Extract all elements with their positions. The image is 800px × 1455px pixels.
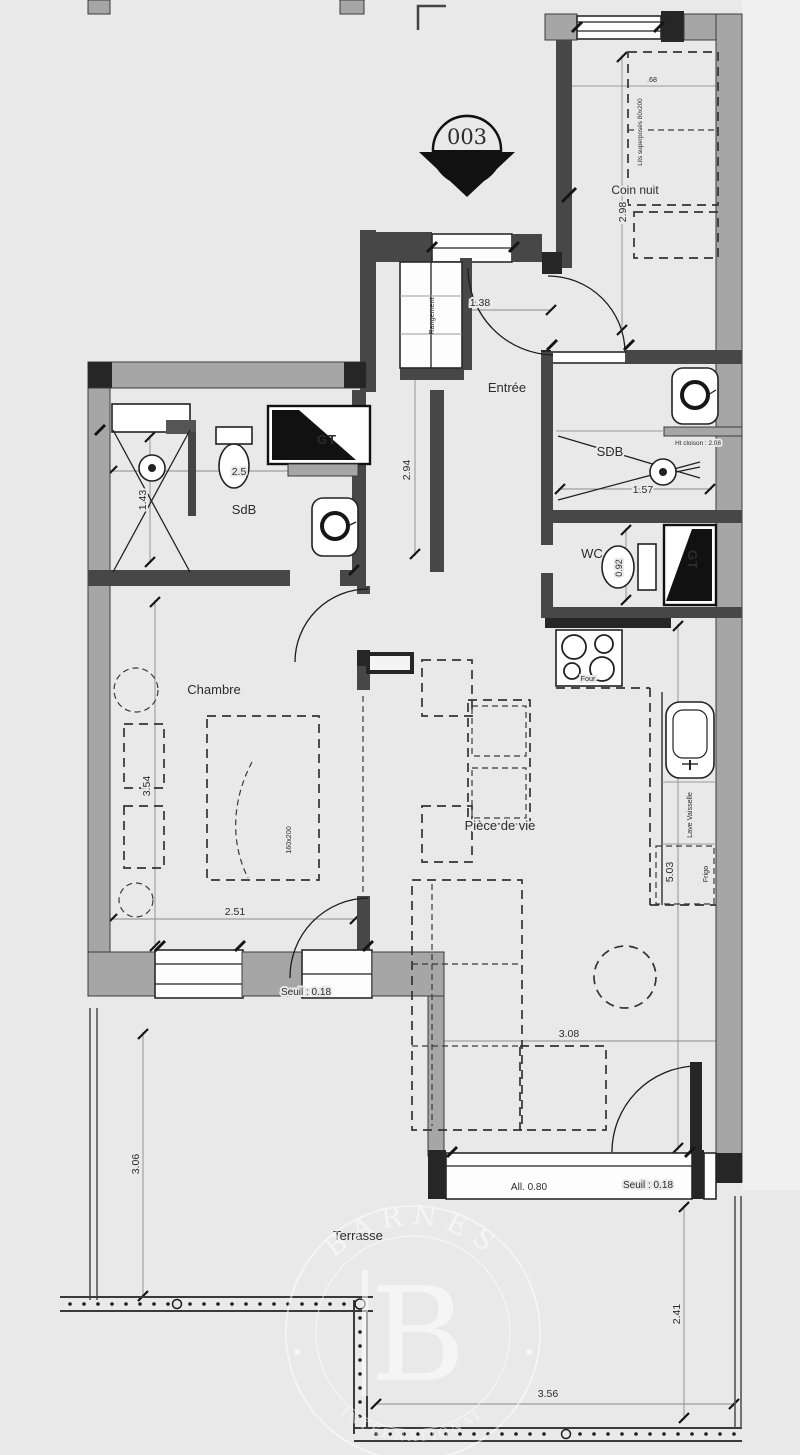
exterior-wall-right [716,14,742,1182]
toilet-tank [216,427,252,444]
bunk-bed-label: Lits superposés 80x200 [637,98,644,166]
double-bed-label: 160x200 [284,826,293,854]
window-sejour [446,1153,692,1199]
window-coin-nuit [577,16,661,39]
watermark-bar [362,1270,368,1396]
dishwasher-label: Lave Vaisselle [685,792,694,838]
watermark-initial: B [370,1259,466,1411]
partition-note-label: Ht cloison : 2.08 [675,440,721,447]
room-label-sdb-right: SDB [597,444,624,459]
dim-sejour: 3.08 [559,1028,580,1040]
sdb-right-door-opening [551,352,626,363]
railing-post [562,1430,571,1439]
dim-entree: 1.38 [470,297,491,309]
dim-hallway: 2.94 [401,460,413,481]
fridge-label: Frigo [701,866,710,882]
room-label-chambre: Chambre [187,682,240,697]
dim-kitchen-wall: 5.03 [664,862,676,883]
railing-post [173,1300,182,1309]
room-label-piece-de-vie: Pièce de vie [465,818,536,833]
dim-terrasse-left: 3.06 [130,1154,142,1175]
window-chambre [155,950,243,998]
allege-label: All. 0.80 [511,1182,548,1193]
toilet-wc-tank [638,544,656,590]
room-label-coin-nuit: Coin nuit [611,183,659,197]
chambre-door-leaf-inner [370,656,410,670]
seuil-chambre-label: Seuil : 0.18 [281,987,331,998]
terrace-door-sejour-leaf [690,1062,702,1152]
dim-chambre-width: 2.51 [225,906,246,918]
seuil-sejour-label: Seuil : 0.18 [623,1180,673,1191]
dim-wc: 0.92 [614,559,624,577]
closet-label: Rangement [427,297,436,334]
floor-plan-drawing: 003 Coin nuit Entrée SdB SDB WC Chambre … [0,0,800,1455]
exterior-right-strip [742,0,800,1190]
shower-hatch [166,420,196,434]
washing-machine-right [672,368,718,424]
terrace-door-sejour-opening [704,1153,716,1199]
room-label-wc: WC [581,546,603,561]
gt-left-label: GT [317,432,337,447]
dim-terrasse-bottom: 3.56 [538,1388,559,1400]
dim-shower: 1.43 [137,490,149,511]
kitchen-sink [666,702,714,778]
floor-plan-page: 003 Coin nuit Entrée SdB SDB WC Chambre … [0,0,800,1455]
room-label-entree: Entrée [488,380,526,395]
dim-sdb-left: 2.5 [232,466,247,478]
room-label-sdb-left: SdB [232,502,257,517]
gt-right-label: GT [685,550,700,570]
dim-coin-nuit-width: .68 [647,75,657,84]
exterior-wall-left [88,388,110,992]
unit-number: 003 [447,125,487,149]
washing-machine-left [312,498,358,556]
oven-label: Four [581,674,596,683]
shower-glass [188,432,196,516]
dim-terrasse-right: 2.41 [671,1304,683,1325]
dim-sdb-right: 1.57 [633,484,654,496]
dim-coin-nuit-length: 2.98 [617,202,629,223]
dim-chambre-length: 3.54 [141,776,153,797]
